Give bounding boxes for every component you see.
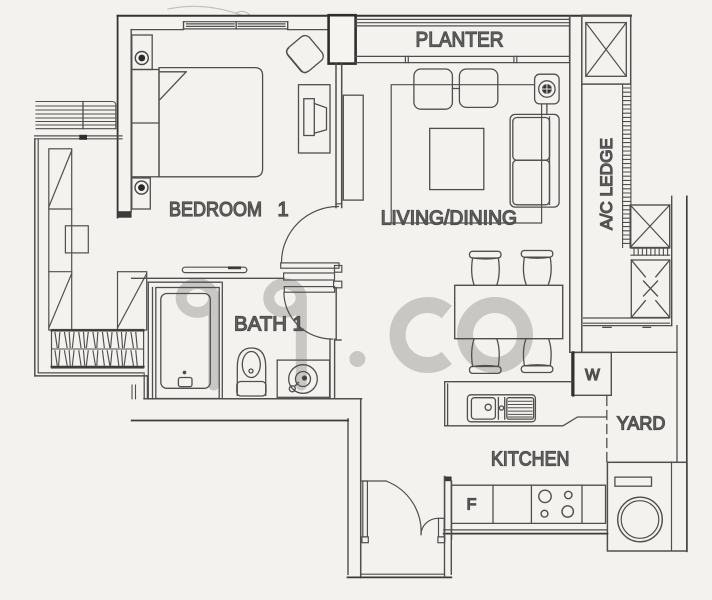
svg-text:KITCHEN: KITCHEN (491, 449, 569, 471)
svg-text:W: W (585, 367, 600, 384)
svg-text:LIVING/DINING: LIVING/DINING (381, 208, 517, 230)
svg-text:F: F (467, 497, 477, 514)
svg-text:BEDROOM: BEDROOM (169, 199, 262, 221)
svg-text:PLANTER: PLANTER (416, 29, 504, 52)
svg-text:BATH 1: BATH 1 (234, 314, 304, 336)
svg-text:A/C LEDGE: A/C LEDGE (597, 138, 616, 230)
svg-text:YARD: YARD (617, 414, 666, 434)
svg-text:1: 1 (278, 199, 289, 221)
